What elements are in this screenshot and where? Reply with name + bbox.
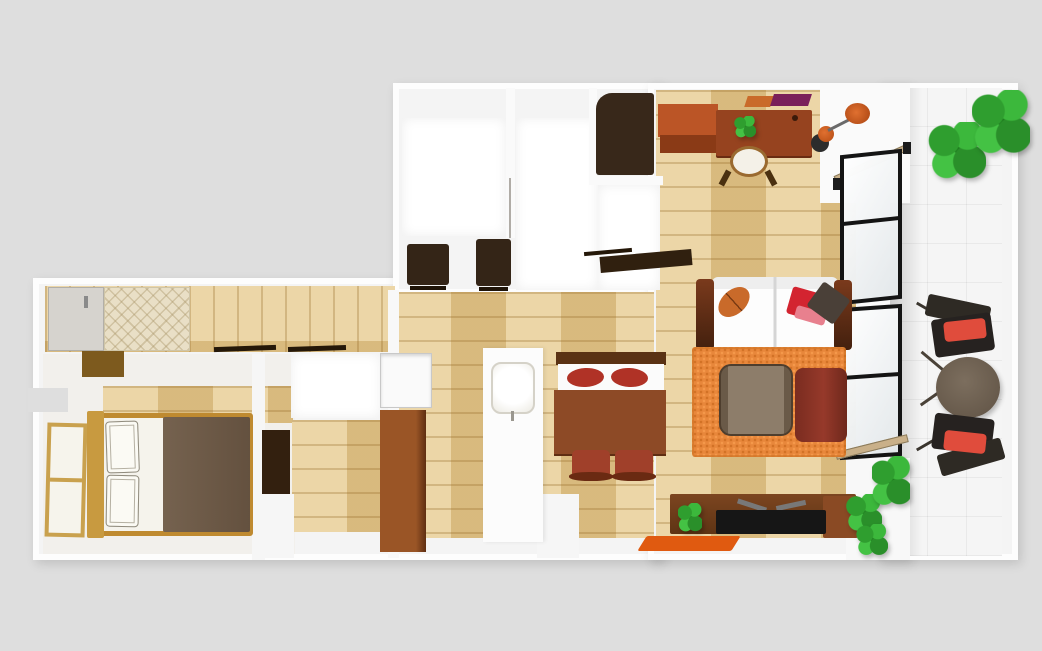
balcony-table (936, 357, 1000, 418)
balcony-plant-2 (972, 90, 1030, 156)
sideboard-orange-front (660, 135, 718, 153)
wall-notch (28, 388, 68, 412)
dining-chair-1-back (569, 472, 613, 481)
bathroom-cabinet-2-base (479, 287, 508, 291)
refrigerator (380, 353, 432, 408)
tv-plant (678, 503, 702, 533)
bathroom-door-line (509, 178, 511, 238)
closet-niche-floor (598, 185, 660, 290)
dining-chair-2-back (612, 472, 656, 481)
bedroom-window (45, 422, 88, 537)
bathroom-cabinet-2 (476, 239, 511, 286)
laundry-cabinet (596, 93, 654, 175)
kitchen-sink (491, 362, 535, 414)
floor-lamp-shade (845, 103, 870, 124)
entrance-mat (104, 287, 190, 351)
bathroom-niche-wall-h (589, 176, 663, 185)
balcony-chair-bottom-cushion (943, 430, 987, 454)
bathroom-floor-left (402, 118, 506, 236)
desk-plant (734, 116, 756, 138)
closet-room (291, 354, 381, 418)
entrance-step (82, 351, 124, 377)
sideboard-orange (658, 104, 718, 137)
dining-table (554, 390, 666, 454)
closet-floor-wood (292, 420, 389, 532)
bathroom-cabinet-1-base (410, 286, 446, 290)
entrance-door-handle (84, 296, 88, 308)
entrance-door (48, 287, 104, 351)
floor-plan-scene (0, 0, 1042, 651)
tv-screen (716, 510, 826, 534)
floor-plant-2 (856, 524, 888, 556)
kitchen-cabinet (380, 410, 426, 552)
balcony-plant-3 (872, 456, 910, 508)
window-sash-post-2 (903, 142, 911, 154)
bathroom-cabinet-1 (407, 244, 449, 285)
bedroom-dresser (262, 430, 290, 494)
armchair (795, 368, 847, 442)
bed-pillow-1 (105, 420, 140, 473)
tv-mat (637, 536, 740, 551)
closet-lower-wall (262, 494, 294, 558)
bed-headboard (87, 411, 104, 538)
bathroom-floor-right (516, 118, 598, 290)
bed-pillow-2 (106, 475, 140, 528)
coffee-table (719, 364, 793, 436)
sink-faucet (511, 411, 514, 421)
desk-chair-cushion (730, 146, 768, 177)
sofa-arm-left (696, 279, 714, 350)
desk-knob (792, 115, 798, 121)
dining-lower-wall (537, 494, 579, 558)
bed-blanket (163, 417, 250, 532)
wall-shelf-purple (770, 94, 812, 106)
